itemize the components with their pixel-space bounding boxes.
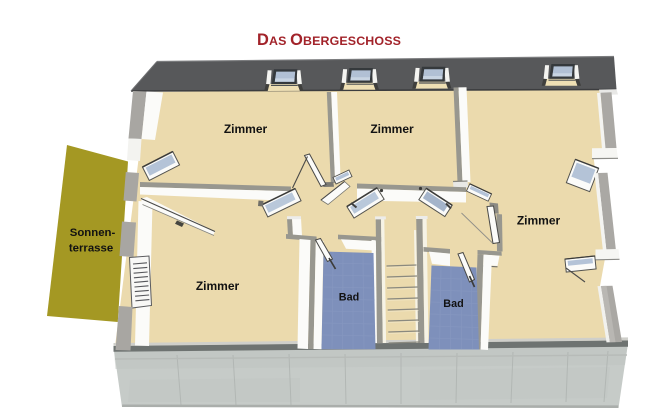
svg-text:Bad: Bad: [339, 292, 359, 304]
svg-text:terrasse: terrasse: [69, 242, 113, 254]
svg-text:Sonnen-: Sonnen-: [70, 227, 116, 239]
svg-text:Zimmer: Zimmer: [196, 279, 240, 293]
svg-text:Bad: Bad: [443, 298, 463, 310]
svg-text:DAS OBERGESCHOSS: DAS OBERGESCHOSS: [257, 31, 401, 49]
svg-text:Zimmer: Zimmer: [224, 122, 268, 136]
svg-text:Zimmer: Zimmer: [517, 214, 561, 228]
svg-text:Zimmer: Zimmer: [370, 122, 414, 136]
